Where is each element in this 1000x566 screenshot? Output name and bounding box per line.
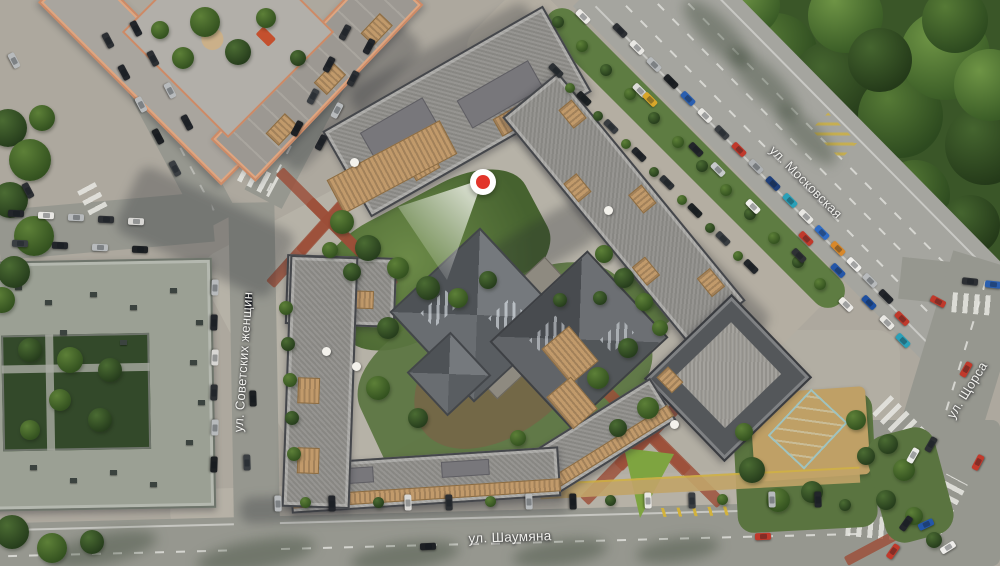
roof-skylight <box>420 290 459 328</box>
tower-roof-center <box>675 322 781 428</box>
building-existing-west <box>0 258 216 512</box>
bus-stop-zigzag <box>657 506 737 517</box>
patio-umbrella <box>350 158 359 167</box>
playground-structure <box>256 26 277 47</box>
roof-terrace <box>361 13 393 46</box>
roof-equipment <box>441 459 490 478</box>
roof-terrace <box>628 184 656 213</box>
roof-terrace <box>297 447 320 474</box>
roof-terrace <box>632 257 660 286</box>
patio-umbrella <box>670 420 679 429</box>
roof-terrace <box>297 377 320 404</box>
street-label-shaumyana: ул. Шаумяна <box>468 528 551 546</box>
roof-skylight <box>600 319 634 353</box>
roof-terrace <box>266 113 298 146</box>
courtyard-path <box>2 363 150 374</box>
masterplan-map[interactable]: ул. Советских женщин ул. Шаумяна ул. Мос… <box>0 0 1000 566</box>
patio-umbrella <box>604 206 613 215</box>
roof-terrace <box>558 99 586 128</box>
forest-tree <box>848 28 912 92</box>
roof-terrace <box>563 173 591 202</box>
roof-terrace <box>314 62 346 95</box>
crosswalk <box>951 292 995 316</box>
patio-umbrella <box>352 362 361 371</box>
car <box>21 181 35 198</box>
tree <box>29 105 55 131</box>
sandbox <box>197 24 228 55</box>
roof-terrace <box>697 268 725 297</box>
tree <box>9 139 51 181</box>
courtyard-path <box>45 335 55 451</box>
view-point-marker[interactable] <box>470 169 496 195</box>
building-west-wing <box>282 255 359 509</box>
car <box>7 51 21 68</box>
patio-umbrella <box>322 347 331 356</box>
tree <box>0 109 27 147</box>
inner-courtyard <box>1 333 151 452</box>
